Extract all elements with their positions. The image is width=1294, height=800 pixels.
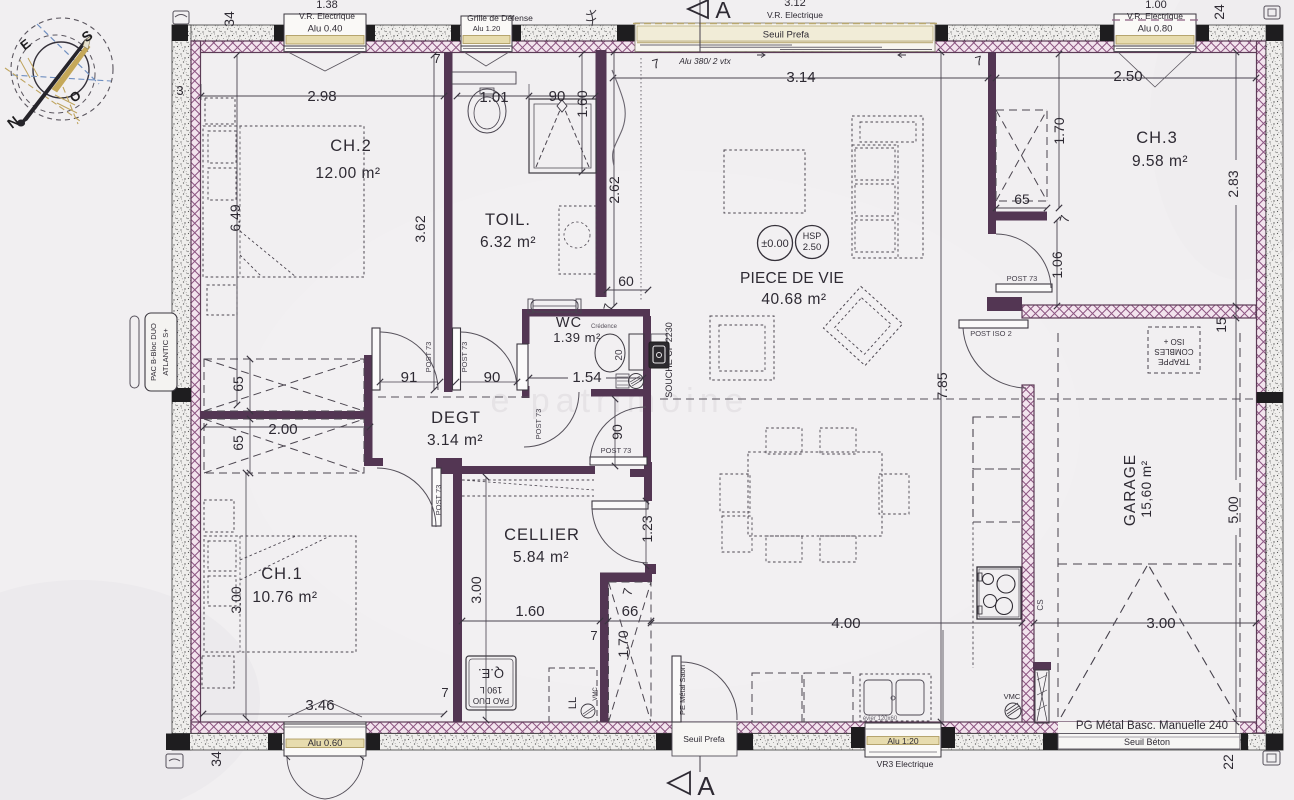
svg-text:DEGT: DEGT — [431, 409, 481, 427]
svg-text:PG Métal Basc. Manuelle 240: PG Métal Basc. Manuelle 240 — [1076, 720, 1228, 732]
svg-text:1.60: 1.60 — [515, 603, 544, 620]
svg-text:POST ISO 2: POST ISO 2 — [970, 329, 1012, 338]
svg-text:VMC: VMC — [593, 687, 599, 701]
svg-text:Grille de Défense: Grille de Défense — [467, 13, 533, 23]
svg-text:9.58 m²: 9.58 m² — [1132, 153, 1188, 170]
svg-text:66: 66 — [622, 603, 639, 620]
svg-text:PE Métal Saon: PE Métal Saon — [678, 665, 687, 715]
svg-text:TRAPPE: TRAPPE — [1158, 357, 1190, 366]
svg-text:3.12: 3.12 — [784, 0, 805, 9]
svg-text:2.50: 2.50 — [803, 242, 822, 253]
svg-text:V.R. Electrique: V.R. Electrique — [299, 11, 355, 21]
svg-text:CH.1: CH.1 — [261, 565, 303, 583]
svg-text:5.00: 5.00 — [1225, 496, 1241, 523]
svg-text:Alu 0.80: Alu 0.80 — [1138, 24, 1173, 35]
svg-text:1.00: 1.00 — [1145, 0, 1166, 11]
svg-text:1.06: 1.06 — [1049, 251, 1065, 278]
svg-text:3.46: 3.46 — [305, 697, 334, 714]
svg-text:3.14: 3.14 — [786, 69, 815, 86]
svg-text:190 L: 190 L — [480, 685, 503, 695]
svg-text:3: 3 — [176, 83, 183, 98]
svg-text:Alu 1:20: Alu 1:20 — [887, 736, 918, 746]
svg-text:Seuil Prefa: Seuil Prefa — [683, 734, 725, 744]
svg-text:1.38: 1.38 — [316, 0, 337, 11]
svg-text:15: 15 — [1213, 317, 1229, 333]
svg-text:POST 73: POST 73 — [601, 446, 632, 455]
svg-text:2.00: 2.00 — [268, 421, 297, 438]
svg-text:GARAGE: GARAGE — [1122, 454, 1139, 526]
svg-text:Alu 0.40: Alu 0.40 — [308, 24, 343, 35]
svg-text:5.84 m²: 5.84 m² — [513, 549, 569, 566]
svg-text:65: 65 — [230, 435, 246, 451]
svg-text:±0.00: ±0.00 — [761, 238, 788, 250]
svg-text:HSP: HSP — [803, 231, 822, 241]
svg-text:1.70: 1.70 — [1051, 117, 1067, 144]
svg-text:22: 22 — [1220, 754, 1236, 770]
svg-text:POST 73: POST 73 — [434, 485, 443, 516]
svg-text:65: 65 — [230, 376, 246, 392]
svg-text:3.14 m²: 3.14 m² — [427, 432, 483, 449]
svg-text:4.00: 4.00 — [831, 615, 860, 632]
svg-text:V.R. Electrique: V.R. Electrique — [767, 10, 823, 20]
svg-text:V.R. Electrique: V.R. Electrique — [1127, 11, 1183, 21]
svg-text:CH.3: CH.3 — [1136, 129, 1178, 147]
svg-text:POST 73: POST 73 — [1007, 274, 1038, 283]
svg-text:7.85: 7.85 — [934, 372, 950, 399]
svg-text:POST 73: POST 73 — [424, 342, 433, 373]
svg-text:2.50: 2.50 — [1113, 68, 1142, 85]
svg-text:15,60 m²: 15,60 m² — [1139, 460, 1154, 517]
svg-text:7: 7 — [433, 51, 440, 66]
svg-text:LL: LL — [567, 697, 579, 709]
svg-text:90: 90 — [549, 88, 566, 105]
svg-text:Alu 380/ 2 vtx: Alu 380/ 2 vtx — [678, 56, 731, 66]
svg-text:Q.E.: Q.E. — [478, 666, 504, 681]
svg-text:12.00 m²: 12.00 m² — [315, 165, 380, 182]
svg-text:1.23: 1.23 — [639, 515, 655, 542]
svg-text:3.00: 3.00 — [228, 586, 244, 613]
svg-text:60: 60 — [618, 273, 634, 289]
svg-text:6.32 m²: 6.32 m² — [480, 234, 536, 251]
svg-text:1.54: 1.54 — [572, 369, 601, 386]
svg-text:COMBLES: COMBLES — [1154, 347, 1193, 356]
svg-text:7: 7 — [590, 628, 597, 643]
svg-text:34: 34 — [208, 751, 224, 767]
svg-text:TOIL.: TOIL. — [485, 211, 531, 229]
svg-text:SOUCHE CF 2230: SOUCHE CF 2230 — [664, 322, 674, 398]
svg-text:VMC: VMC — [1004, 692, 1021, 701]
svg-text:PAC B-Bloc DUO: PAC B-Bloc DUO — [149, 323, 158, 381]
svg-text:90: 90 — [609, 424, 625, 440]
svg-text:34: 34 — [221, 11, 237, 27]
svg-text:6.49: 6.49 — [227, 204, 243, 231]
svg-text:POST 73: POST 73 — [460, 342, 469, 373]
svg-text:CELLIER: CELLIER — [504, 526, 580, 544]
svg-text:Alu 1.20: Alu 1.20 — [473, 24, 501, 33]
svg-text:Alu 0.60: Alu 0.60 — [308, 738, 343, 749]
svg-text:CS: CS — [1036, 599, 1045, 610]
svg-text:WC: WC — [556, 315, 582, 331]
svg-text:PIECE DE VIE: PIECE DE VIE — [740, 270, 844, 287]
svg-text:VR3 Electrique: VR3 Electrique — [877, 759, 934, 769]
svg-text:1.01: 1.01 — [479, 89, 508, 106]
svg-text:91: 91 — [401, 369, 418, 386]
svg-text:1.60: 1.60 — [574, 90, 590, 117]
svg-text:40.68 m²: 40.68 m² — [761, 291, 826, 308]
svg-text:10.76 m²: 10.76 m² — [252, 589, 317, 606]
svg-text:7: 7 — [441, 685, 448, 700]
svg-text:20: 20 — [614, 349, 625, 361]
svg-text:90: 90 — [484, 369, 501, 386]
svg-text:24: 24 — [1211, 4, 1227, 20]
svg-text:A: A — [697, 771, 715, 800]
svg-text:évier 120x60: évier 120x60 — [863, 716, 898, 722]
svg-text:1.39 m²: 1.39 m² — [553, 330, 601, 345]
svg-text:ATLANTIC S+: ATLANTIC S+ — [161, 328, 170, 376]
svg-text:3.62: 3.62 — [412, 215, 428, 242]
svg-text:Crédence: Crédence — [591, 324, 618, 330]
svg-text:2.62: 2.62 — [606, 176, 622, 203]
svg-text:Seuil Béton: Seuil Béton — [1124, 737, 1170, 747]
svg-text:2.83: 2.83 — [1225, 170, 1241, 197]
svg-text:3.00: 3.00 — [468, 576, 484, 603]
svg-text:CH.2: CH.2 — [330, 137, 372, 155]
svg-text:1.70: 1.70 — [615, 630, 631, 657]
svg-text:65: 65 — [1014, 191, 1030, 207]
svg-text:PAO DUO: PAO DUO — [473, 696, 509, 705]
svg-text:3.00: 3.00 — [1146, 615, 1175, 632]
svg-text:Seuil Prefa: Seuil Prefa — [763, 30, 810, 41]
svg-text:ISO +: ISO + — [1163, 337, 1184, 346]
svg-text:POST 73: POST 73 — [534, 409, 543, 440]
svg-text:A: A — [715, 0, 731, 23]
svg-text:2.98: 2.98 — [307, 88, 336, 105]
